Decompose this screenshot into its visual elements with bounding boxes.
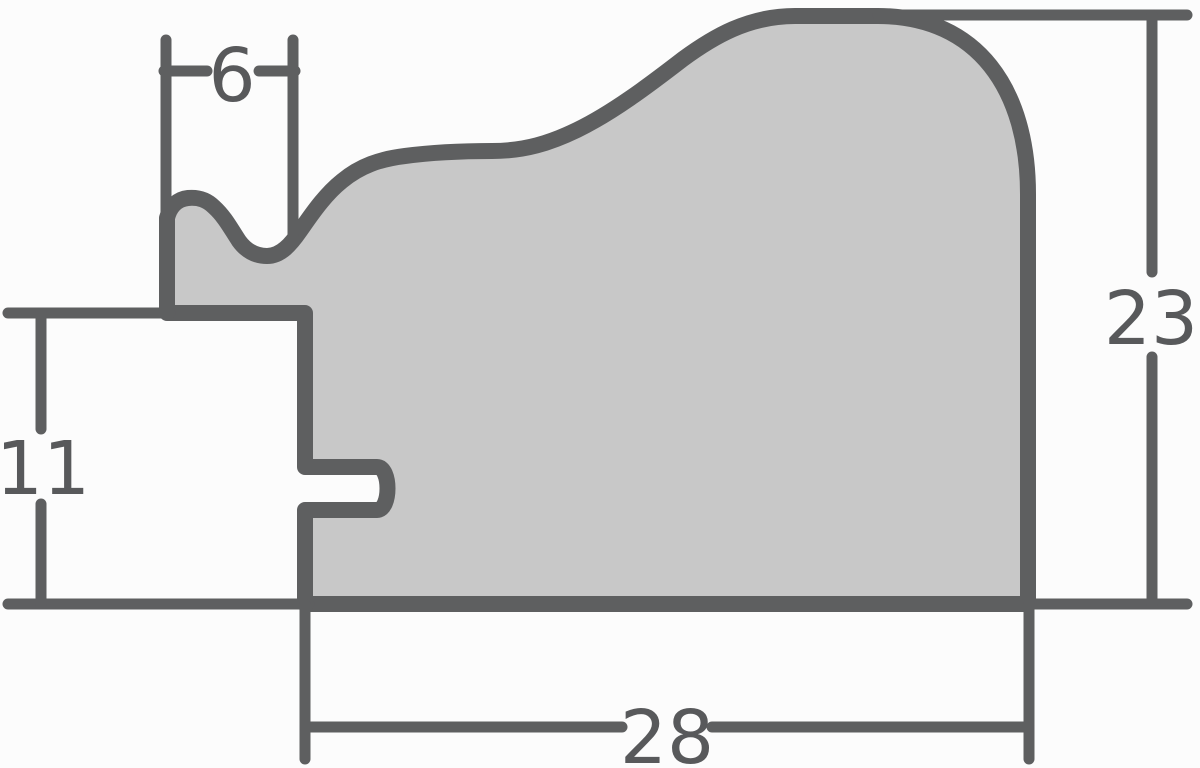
dimension-rabbet-height: 11	[0, 313, 309, 604]
dimension-overall-width: 28	[305, 604, 1029, 768]
drawing-canvas: 6 11 23 28	[0, 0, 1200, 768]
dimension-label-overall-height: 23	[1104, 276, 1198, 362]
dimension-label-lip-width: 6	[208, 33, 255, 119]
dimension-label-rabbet-height: 11	[0, 426, 90, 512]
dimension-label-overall-width: 28	[620, 695, 714, 768]
profile-drawing: 6 11 23 28	[0, 0, 1200, 768]
